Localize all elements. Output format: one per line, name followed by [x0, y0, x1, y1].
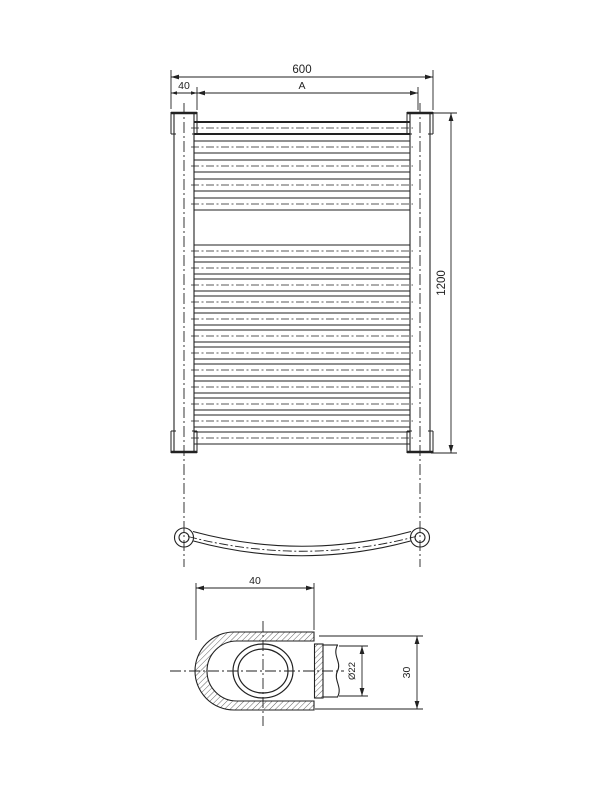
top-view [175, 528, 430, 556]
dim-label-height: 1200 [436, 270, 448, 296]
dim-span-a: A [197, 80, 418, 110]
dim-label-overall-width: 600 [292, 64, 311, 76]
tube-end-collars [171, 112, 433, 453]
dim-label-tube-width: 40 [178, 80, 190, 92]
drawing-root: 600 40 A [170, 64, 457, 726]
dim-profile-width: 40 [196, 575, 314, 640]
dim-label-span-a: A [298, 80, 305, 92]
center-lines [184, 103, 420, 567]
towel-radiator-drawing: 600 40 A [0, 0, 600, 800]
drawing-page: 600 40 A [0, 0, 600, 800]
dim-height: 1200 [431, 113, 457, 453]
dim-label-pipe-diameter: Ø22 [347, 662, 358, 680]
rungs [191, 122, 413, 444]
curved-rail [188, 532, 416, 556]
dim-label-profile-width: 40 [249, 575, 261, 587]
front-view: 600 40 A [171, 64, 457, 567]
dim-label-depth: 30 [401, 667, 413, 679]
detail-view: 40 Ø22 30 [170, 575, 423, 726]
dim-depth: 30 [315, 636, 423, 709]
